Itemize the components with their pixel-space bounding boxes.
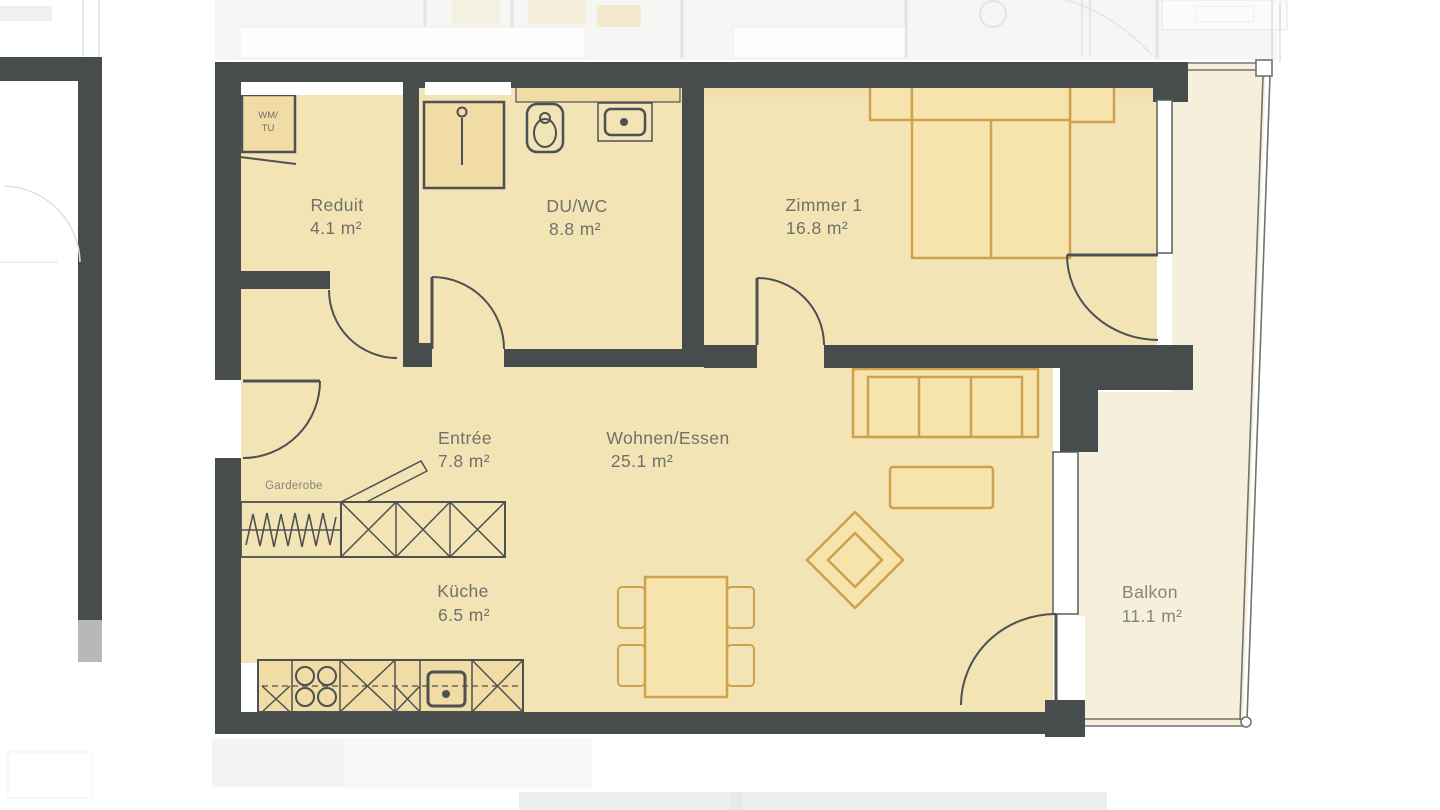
area-balkon: 11.1 m² [1122,606,1183,626]
nightstand-right [1070,86,1114,122]
label-garderobe: Garderobe [265,480,323,492]
counter-gap [240,663,257,712]
ghost-door-arc [4,186,80,262]
wm-tu-label-line2: TU [262,123,275,134]
label-kueche: Küche [437,581,489,601]
area-kueche: 6.5 m² [438,605,490,625]
ghost-upper-floor [215,0,1287,62]
window-strip-duwc [425,82,511,95]
window-wohnen [1053,452,1078,614]
dining-table [645,577,727,697]
area-wohnen: 25.1 m² [611,451,673,471]
floor-reflection [212,738,1107,810]
area-reduit: 4.1 m² [310,218,362,238]
floor-plan-page: WM/ TU [0,0,1440,810]
window-strip-reduit [241,82,403,95]
label-duwc: DU/WC [546,196,607,216]
room-kueche [240,660,523,712]
nightstand-left [870,86,912,120]
ghost-left-neighbor [0,0,102,798]
window-zimmer1 [1157,100,1172,253]
label-reduit: Reduit [311,195,364,215]
sink-faucet-dot [620,118,628,126]
coffee-table [890,467,993,508]
area-entree: 7.8 m² [438,451,490,471]
ghost-text-smudge [0,6,52,21]
label-balkon: Balkon [1122,582,1178,602]
area-duwc: 8.8 m² [549,219,601,239]
area-zimmer1: 16.8 m² [786,218,848,238]
wm-tu-label-line1: WM/ [258,110,278,121]
label-wohnen: Wohnen/Essen [606,428,729,448]
floor-plan-canvas: WM/ TU [0,0,1440,810]
ghost-balcony [8,752,92,798]
sofa [853,369,1038,437]
label-entree: Entrée [438,428,492,448]
label-zimmer1: Zimmer 1 [785,195,862,215]
sink-drain-dot [442,690,450,698]
